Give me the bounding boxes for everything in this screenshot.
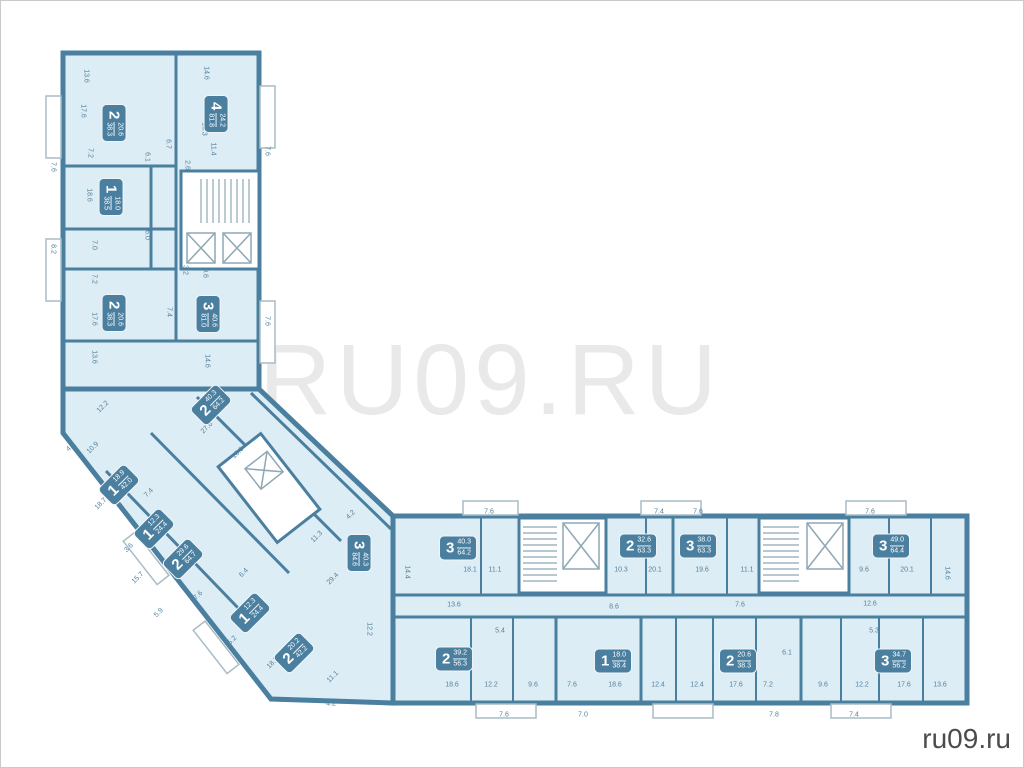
room-dimension-label: 8.6: [609, 604, 619, 611]
apartment-total-area: 63.3: [637, 547, 651, 556]
apartment-room-count: 3: [352, 541, 367, 549]
room-dimension-label: 9.6: [528, 682, 538, 689]
room-dimension-label: 17.6: [897, 682, 911, 689]
room-dimension-label: 7.4: [654, 509, 664, 516]
apartment-total-area: 38.5: [101, 196, 110, 210]
room-dimension-label: 7.6: [264, 146, 271, 156]
apartment-areas: 40.6 81.0: [198, 313, 217, 327]
room-dimension-label: 7.2: [91, 274, 98, 284]
room-dimension-label: 7.8: [769, 712, 779, 719]
apartment-total-area: 56.2: [892, 662, 906, 671]
apartment-areas: 32.6 63.3: [637, 536, 651, 555]
apartment-living-area: 20.6: [737, 651, 751, 661]
apartment-room-count: 1: [601, 654, 609, 669]
apartment-badge: 2 39.2 56.3: [435, 646, 473, 671]
room-dimension-label: 7.0: [91, 240, 98, 250]
apartment-badge: 3 40.3 64.2: [439, 535, 477, 560]
room-dimension-label: 17.6: [91, 312, 98, 326]
room-dimension-label: 7.6: [499, 712, 509, 719]
room-dimension-label: 17.6: [729, 682, 743, 689]
apartment-total-area: 38.3: [104, 312, 113, 326]
apartment-living-area: 40.3: [457, 538, 471, 548]
apartment-living-area: 40.6: [208, 313, 218, 327]
apartment-areas: 20.6 38.3: [104, 312, 123, 326]
apartment-total-area: 81.0: [198, 313, 207, 327]
apartment-total-area: 56.3: [453, 660, 467, 669]
apartment-total-area: 38.4: [612, 662, 626, 671]
apartment-badge: 2 20.6 38.3: [101, 294, 126, 332]
room-dimension-label: 18.6: [86, 188, 93, 202]
room-dimension-label: 7.4: [166, 307, 173, 317]
apartment-room-count: 2: [107, 301, 122, 309]
room-dimension-label: 12.4: [690, 682, 704, 689]
apartment-total-area: 64.4: [890, 547, 904, 556]
apartment-living-area: 39.2: [453, 649, 467, 659]
room-dimension-label: 7.2: [87, 148, 94, 158]
room-dimension-label: 5.3: [869, 628, 879, 635]
room-dimension-label: 18.6: [445, 682, 459, 689]
apartment-areas: 40.3 84.6: [349, 552, 368, 566]
room-dimension-label: 12.6: [863, 601, 877, 608]
room-dimension-label: 3.2: [182, 265, 189, 275]
apartment-badge: 2 32.6 63.3: [619, 533, 657, 558]
apartment-badge: 3 38.0 63.3: [679, 533, 717, 558]
room-dimension-label: 13.6: [83, 69, 90, 83]
room-dimension-label: 20.1: [900, 567, 914, 574]
apartment-total-area: 64.2: [457, 549, 471, 558]
apartment-room-count: 3: [879, 539, 887, 554]
room-dimension-label: 18.6: [608, 682, 622, 689]
apartment-room-count: 3: [686, 539, 694, 554]
apartment-areas: 20.6 38.3: [104, 122, 123, 136]
building-outline: [63, 53, 967, 703]
room-dimension-label: 5.4: [495, 628, 505, 635]
apartment-badge: 1 18.0 38.4: [594, 648, 632, 673]
room-dimension-label: 20.1: [648, 567, 662, 574]
room-dimension-label: 14.6: [204, 354, 211, 368]
apartment-living-area: 34.7: [892, 651, 906, 661]
room-dimension-label: 9.6: [202, 268, 209, 278]
room-dimension-label: 13.6: [933, 682, 947, 689]
room-dimension-label: 19.6: [695, 567, 709, 574]
apartment-total-area: 84.6: [349, 552, 358, 566]
apartment-room-count: 3: [881, 654, 889, 669]
apartment-badge: 3 40.3 84.6: [346, 534, 371, 572]
apartment-living-area: 20.6: [114, 122, 124, 136]
room-dimension-label: 2.6: [184, 160, 191, 170]
apartment-room-count: 3: [446, 541, 454, 556]
room-dimension-label: 10.3: [614, 567, 628, 574]
apartment-room-count: 2: [107, 111, 122, 119]
room-dimension-label: 9.6: [818, 682, 828, 689]
room-dimension-label: 14.4: [404, 565, 411, 579]
apartment-living-area: 40.3: [359, 552, 369, 566]
apartment-areas: 49.0 64.4: [890, 536, 904, 555]
room-dimension-label: 7.4: [849, 712, 859, 719]
room-dimension-label: 6.7: [165, 139, 172, 149]
apartment-living-area: 18.0: [111, 196, 121, 210]
apartment-living-area: 49.0: [890, 536, 904, 546]
site-signature: ru09.ru: [922, 723, 1011, 755]
apartment-areas: 39.2 56.3: [453, 649, 467, 668]
room-dimension-label: 7.6: [264, 316, 271, 326]
apartment-total-area: 63.3: [697, 547, 711, 556]
room-dimension-label: 7.6: [50, 162, 57, 172]
room-dimension-label: 12.2: [855, 682, 869, 689]
room-dimension-label: 11.1: [740, 567, 753, 574]
room-dimension-label: 12.4: [651, 682, 665, 689]
room-dimension-label: 13.6: [91, 350, 98, 364]
apartment-areas: 20.6 38.3: [737, 651, 751, 670]
floorplan-drawing: [1, 1, 1024, 768]
room-dimension-label: 11.1: [488, 567, 501, 574]
apartment-badge: 4 24.2 81.8: [203, 95, 228, 133]
apartment-areas: 40.3 64.2: [457, 538, 471, 557]
apartment-badge: 2 20.6 38.3: [719, 648, 757, 673]
apartment-room-count: 2: [726, 654, 734, 669]
apartment-badge: 3 49.0 64.4: [872, 533, 910, 558]
apartment-living-area: 32.6: [637, 536, 651, 546]
apartment-total-area: 81.8: [206, 113, 215, 127]
apartment-areas: 18.0 38.5: [101, 196, 120, 210]
room-dimension-label: 4.2: [326, 701, 336, 708]
room-dimension-label: 13.6: [447, 602, 461, 609]
room-dimension-label: 7.2: [763, 682, 773, 689]
room-dimension-label: 6.1: [782, 650, 792, 657]
room-dimension-label: 8.2: [50, 244, 57, 254]
apartment-living-area: 38.0: [697, 536, 711, 546]
room-dimension-label: 9.6: [859, 567, 869, 574]
apartment-total-area: 38.3: [737, 662, 751, 671]
apartment-areas: 18.0 38.4: [612, 651, 626, 670]
room-dimension-label: 7.6: [735, 602, 745, 609]
apartment-room-count: 2: [626, 539, 634, 554]
room-dimension-label: 7.6: [567, 682, 577, 689]
apartment-badge: 3 34.7 56.2: [874, 648, 912, 673]
room-dimension-label: 12.2: [366, 622, 373, 636]
room-dimension-label: 6.0: [144, 230, 151, 240]
apartment-room-count: 4: [209, 102, 224, 110]
apartment-badge: 3 40.6 81.0: [195, 295, 220, 333]
room-dimension-label: 12.2: [484, 682, 498, 689]
room-dimension-label: 7.0: [578, 712, 588, 719]
room-dimension-label: 7.6: [865, 509, 875, 516]
apartment-living-area: 20.6: [114, 312, 124, 326]
room-dimension-label: 7.6: [484, 509, 494, 516]
apartment-badge: 1 18.0 38.5: [98, 178, 123, 216]
room-dimension-label: 17.6: [80, 104, 87, 118]
apartment-areas: 38.0 63.3: [697, 536, 711, 555]
apartment-total-area: 38.3: [104, 122, 113, 136]
floorplan-page: RU09.RU: [0, 0, 1024, 768]
apartment-room-count: 1: [104, 185, 119, 193]
apartment-room-count: 2: [442, 652, 450, 667]
apartment-living-area: 24.2: [216, 113, 226, 127]
room-dimension-label: 14.6: [203, 66, 210, 80]
apartment-room-count: 3: [201, 302, 216, 310]
room-dimension-label: 14.6: [944, 566, 951, 580]
room-dimension-label: 7.6: [693, 509, 703, 516]
room-dimension-label: 11.4: [210, 142, 217, 155]
apartment-badge: 2 20.6 38.3: [101, 104, 126, 142]
room-dimension-label: 6.1: [144, 152, 151, 162]
apartment-areas: 34.7 56.2: [892, 651, 906, 670]
apartment-living-area: 18.0: [612, 651, 626, 661]
room-dimension-label: 18.1: [463, 567, 477, 574]
apartment-areas: 24.2 81.8: [206, 113, 225, 127]
